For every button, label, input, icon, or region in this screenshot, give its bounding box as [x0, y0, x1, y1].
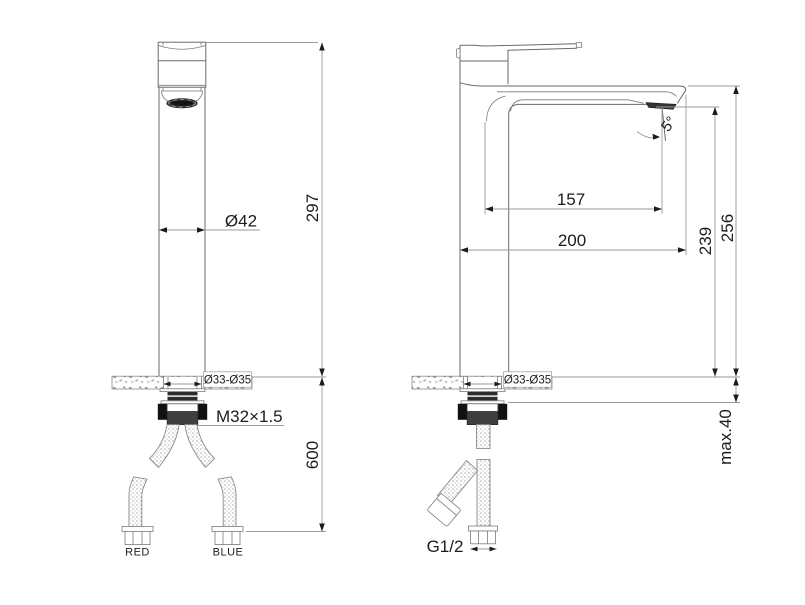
- dim-label-hose-length: 600: [303, 441, 322, 469]
- side-view: [412, 43, 686, 544]
- hose-hot-upper: [150, 425, 180, 468]
- lever-bottom-edge: [508, 48, 577, 50]
- dim-label-spout-top-height: 256: [718, 214, 737, 242]
- dim-label-spout-reach: 157: [557, 190, 585, 209]
- drawing-canvas: Ø42 297 600 Ø33-Ø35 M32×1.5: [0, 0, 805, 605]
- hose-cold-lower: [218, 477, 236, 527]
- mounting-hardware-side: [458, 389, 507, 425]
- dim-label-outlet-height: 239: [696, 227, 715, 255]
- hot-fitting-flange: [122, 526, 153, 531]
- dim-label-height-above-deck: 297: [303, 194, 322, 222]
- dimension-spout-reach: 157: [485, 122, 662, 214]
- dimension-outlet-height: 239: [656, 107, 719, 377]
- lever-top-edge: [460, 44, 577, 46]
- dim-label-hole-front: Ø33-Ø35: [204, 375, 251, 387]
- dimensions: Ø42 297 600 Ø33-Ø35 M32×1.5: [125, 43, 740, 559]
- supply-hoses-side: [427, 425, 498, 544]
- hot-fitting-hex: [125, 531, 150, 544]
- cold-fitting-hex: [215, 531, 240, 544]
- locknut-body: [167, 412, 198, 425]
- dim-label-outlet-angle: 5°: [658, 113, 680, 135]
- locknut-left-flat-side: [458, 404, 467, 420]
- cold-fitting-flange: [212, 526, 243, 531]
- hose-stub-side: [477, 425, 491, 449]
- handle-base: [460, 50, 508, 84]
- dim-label-body-diameter: Ø42: [225, 212, 257, 231]
- dim-label-locknut-thread: M32×1.5: [216, 407, 283, 426]
- locknut-left-flat: [158, 404, 167, 420]
- spout-inner-top-line: [497, 92, 677, 97]
- angled-fitting: [427, 493, 461, 527]
- lever-end-cap: [576, 43, 581, 48]
- locknut-right-flat: [198, 404, 207, 420]
- spout-underside-and-front-edge: [509, 104, 676, 376]
- handle-side-tab: [456, 49, 460, 59]
- dim-label-hole-side: Ø33-Ø35: [504, 375, 551, 387]
- head-bottom-notches: [163, 87, 201, 91]
- hose-hot-lower: [129, 477, 147, 527]
- spout-inner-underside: [511, 100, 644, 112]
- label-cold-hose: BLUE: [213, 547, 244, 559]
- dimension-max-deck-thickness: max.40: [508, 378, 740, 465]
- aerator-side: [646, 103, 676, 110]
- locknut-body-side: [467, 412, 498, 425]
- dim-label-overall-depth: 200: [558, 231, 586, 250]
- dimension-overall-depth: 200: [460, 95, 686, 255]
- dimension-hose-length: 600: [246, 378, 326, 532]
- inlet-fitting-hex: [471, 531, 496, 544]
- spout-inner-arc: [487, 96, 506, 121]
- hose-cold-upper: [185, 425, 215, 468]
- aerator-outlet: [171, 100, 193, 106]
- mounting-hardware-front: [158, 389, 207, 425]
- dimension-outlet-angle: 5°: [637, 108, 680, 214]
- spout-top-edge: [460, 83, 686, 104]
- dim-label-max-deck-thickness: max.40: [716, 409, 735, 465]
- dim-label-inlet-thread: G1/2: [427, 537, 464, 556]
- dimension-height-above-deck: 297: [206, 43, 326, 378]
- locknut-right-flat-side: [498, 404, 507, 420]
- supply-hoses-front: [122, 425, 243, 545]
- label-hot-hose: RED: [125, 547, 150, 559]
- dimension-body-diameter: Ø42: [159, 212, 260, 233]
- hose-vertical-side: [477, 460, 490, 527]
- inlet-fitting-flange: [469, 526, 498, 531]
- front-view: [112, 42, 252, 544]
- dimension-locknut-thread: M32×1.5: [196, 407, 284, 426]
- faucet-technical-drawing-page: Ø42 297 600 Ø33-Ø35 M32×1.5: [0, 0, 805, 605]
